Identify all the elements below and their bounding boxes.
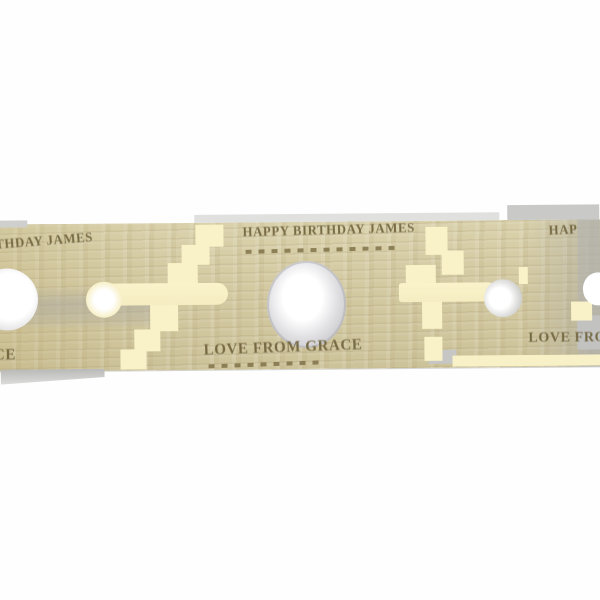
bottom-cream-strip: [452, 354, 600, 366]
jpeg-artifact-block: [168, 263, 198, 285]
jpeg-artifact-block: [406, 265, 436, 283]
product-photo: HAPPY BIRTHDAY JAMES LOVE FROM GRACE RTH…: [0, 0, 600, 600]
right-slot-hole: [484, 279, 522, 317]
bottom-left-gray-wedge: [1, 369, 105, 385]
plank-top-edge-gray: [507, 204, 599, 220]
partial-engraving-right-top: HAPPY BI: [548, 223, 577, 240]
jpeg-artifact-block: [150, 303, 178, 331]
jpeg-artifact-block: [519, 267, 528, 284]
plank-top-edge-gray-left: [0, 220, 27, 227]
jpeg-artifact-block: [134, 329, 160, 351]
jpeg-artifact-block: [120, 349, 146, 369]
partial-engraving-left-bottom: ACE: [0, 346, 16, 364]
left-slot-hole: [86, 282, 122, 318]
jpeg-artifact-block: [442, 251, 464, 275]
jpeg-artifact-block: [571, 301, 592, 320]
jpeg-artifact-block: [424, 337, 442, 361]
jpeg-artifact-block: [195, 225, 223, 247]
wooden-glass-holder-photo: HAPPY BIRTHDAY JAMES LOVE FROM GRACE RTH…: [0, 0, 600, 600]
center-bottle-hole: [267, 261, 347, 349]
partial-engraving-right-bottom: LOVE FROM GR: [528, 329, 600, 347]
jpeg-artifact-block: [422, 299, 442, 329]
right-glass-slot: [399, 282, 497, 302]
